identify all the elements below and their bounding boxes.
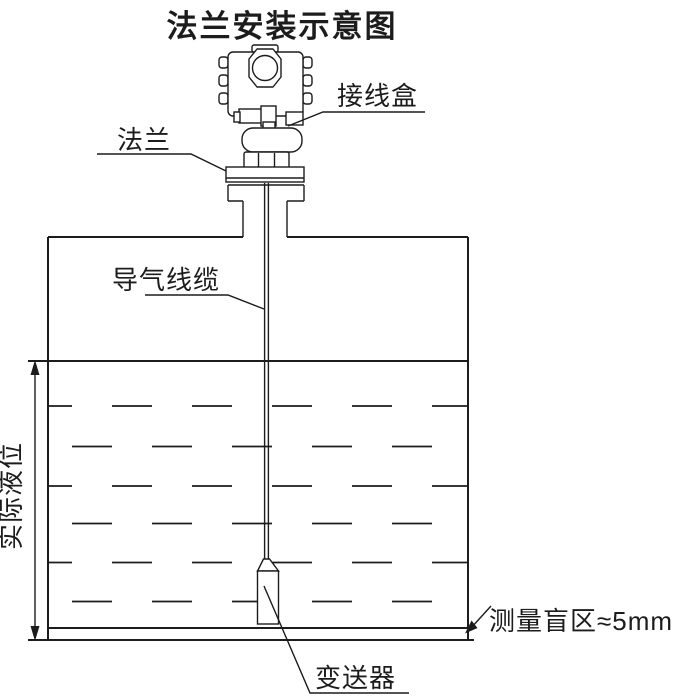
transmitter-head bbox=[219, 45, 312, 182]
diagram-title: 法兰安装示意图 bbox=[167, 9, 398, 44]
air-guide-cable bbox=[265, 183, 269, 561]
label-junction-box: 接线盒 bbox=[337, 81, 418, 111]
top-cap bbox=[249, 45, 281, 87]
knurl-right bbox=[303, 57, 312, 104]
process-connection bbox=[242, 128, 302, 152]
transmitter-probe bbox=[258, 559, 279, 624]
flange-plate bbox=[226, 167, 304, 182]
label-blind-zone: 测量盲区≈5mm bbox=[489, 606, 673, 636]
flange-installation-diagram: 法兰安装示意图 接线盒 法兰 导气线缆 实际液位 测量盲区≈5mm 变送器 bbox=[0, 0, 700, 700]
tank-nozzle bbox=[228, 185, 304, 237]
diagram-canvas: 法兰安装示意图 接线盒 法兰 导气线缆 实际液位 测量盲区≈5mm 变送器 bbox=[0, 0, 700, 700]
leader-flange bbox=[97, 154, 226, 171]
label-air-cable: 导气线缆 bbox=[112, 265, 220, 295]
leader-air-cable bbox=[145, 295, 264, 309]
level-dimension-arrow bbox=[31, 360, 40, 641]
knurl-left bbox=[219, 57, 228, 104]
hex-nut bbox=[244, 152, 289, 168]
tank-outline bbox=[28, 237, 474, 640]
label-actual-level: 实际液位 bbox=[0, 442, 26, 550]
label-transmitter: 变送器 bbox=[315, 663, 396, 693]
leader-junction-box bbox=[288, 112, 425, 126]
label-flange: 法兰 bbox=[117, 125, 171, 155]
